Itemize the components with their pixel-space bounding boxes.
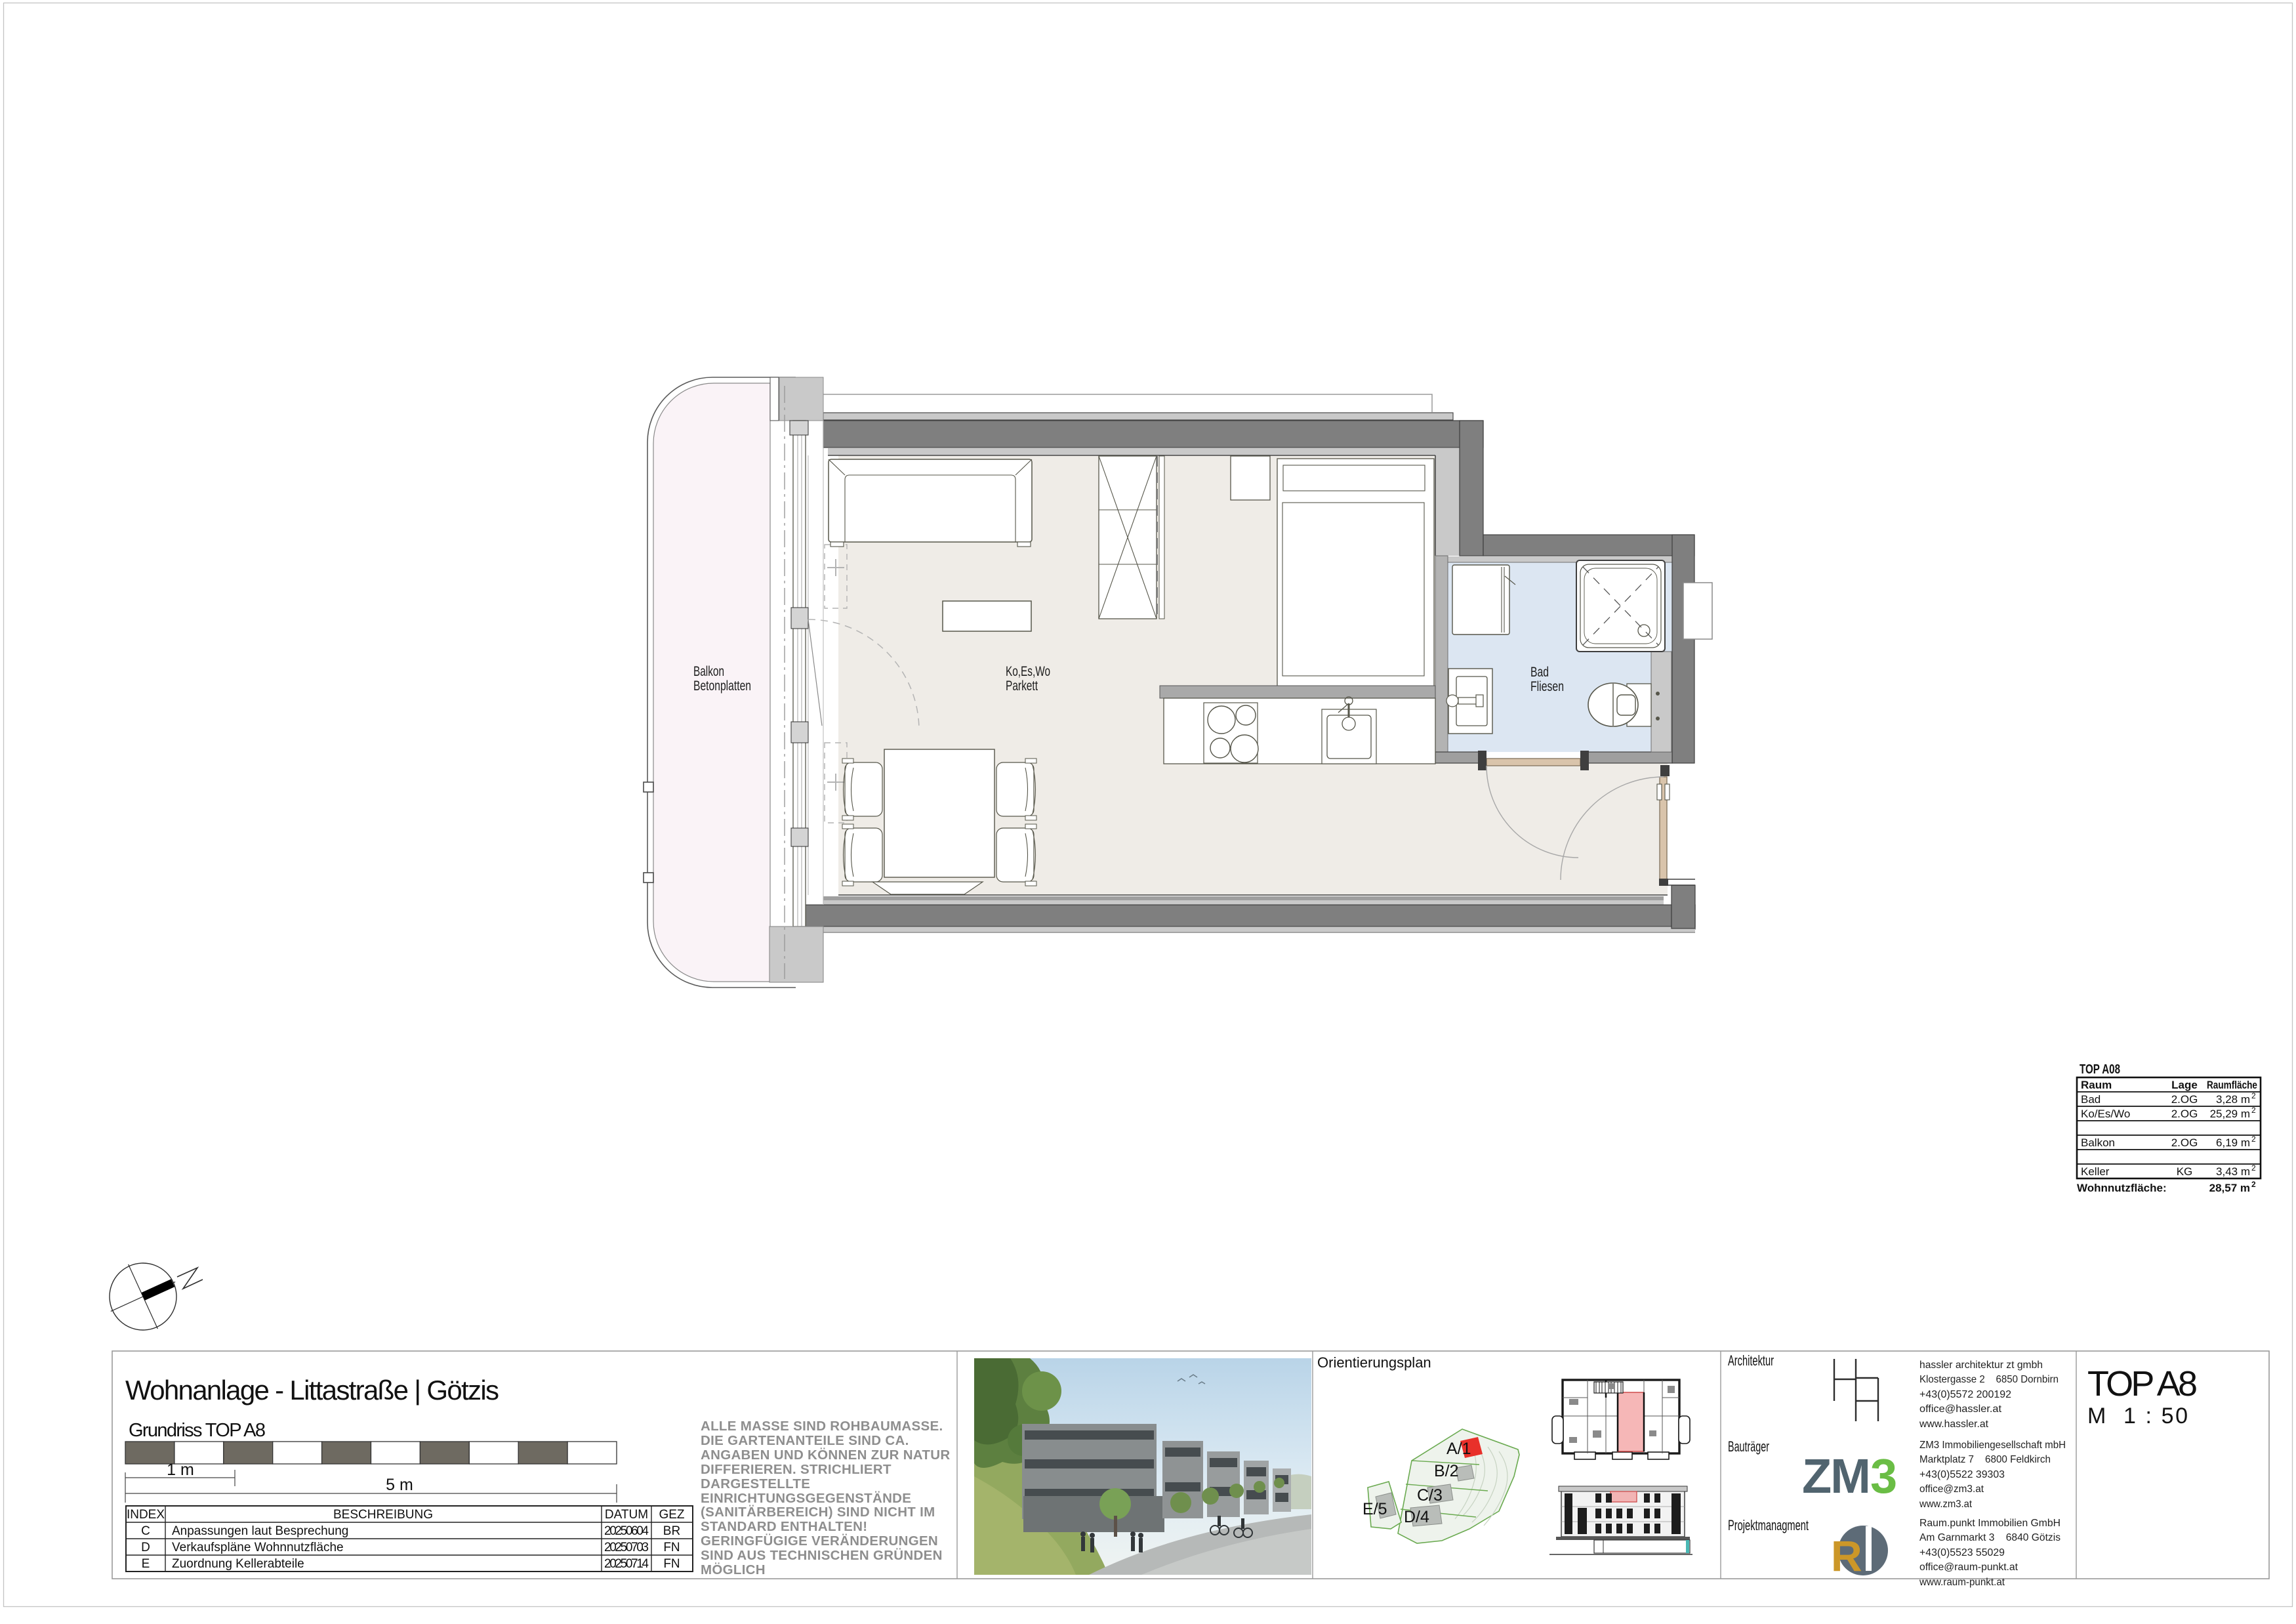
svg-text:C/3: C/3 (1417, 1486, 1443, 1505)
svg-text:A/1: A/1 (1446, 1440, 1471, 1458)
svg-text:B/2: B/2 (1434, 1462, 1459, 1480)
svg-text:Orientierungsplan: Orientierungsplan (1317, 1354, 1431, 1371)
svg-text:D/4: D/4 (1404, 1508, 1429, 1526)
svg-text:E/5: E/5 (1363, 1500, 1387, 1518)
